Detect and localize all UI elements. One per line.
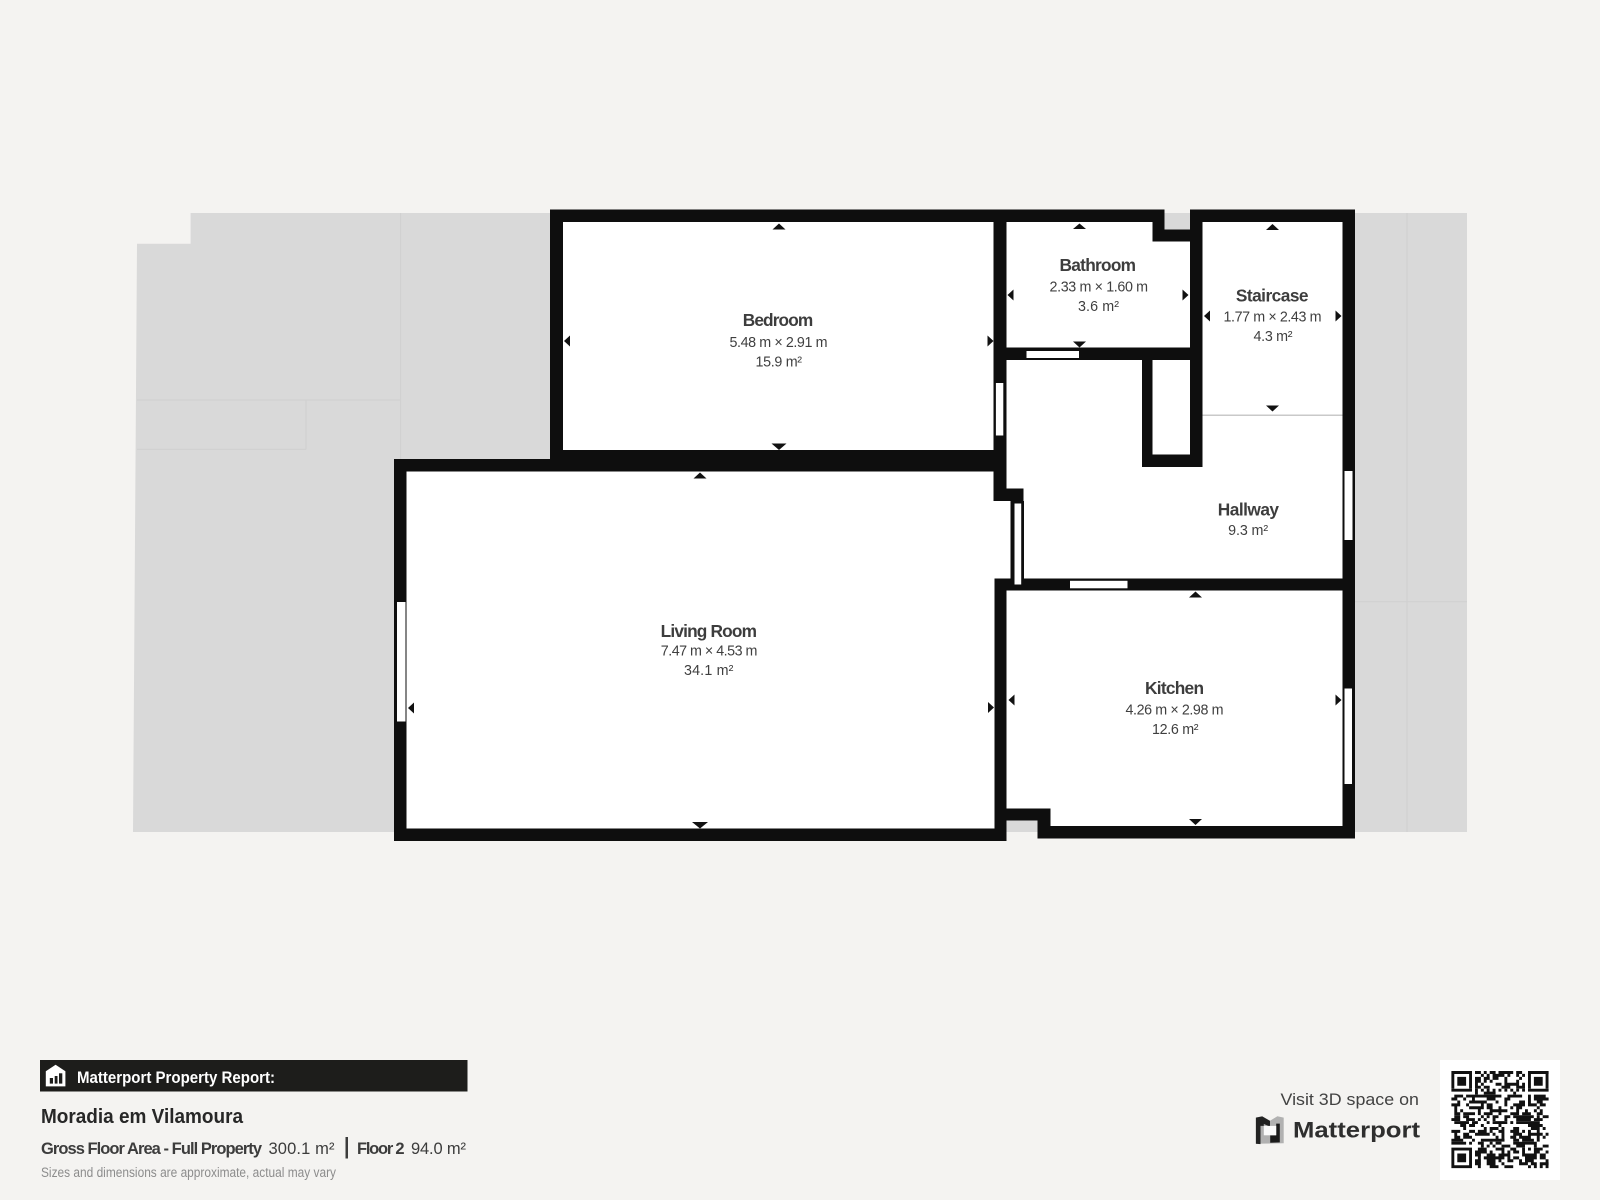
svg-text:9.3 m²: 9.3 m² bbox=[1228, 523, 1268, 539]
svg-text:1.77 m × 2.43 m: 1.77 m × 2.43 m bbox=[1224, 310, 1322, 326]
svg-text:Living Room: Living Room bbox=[661, 621, 757, 641]
svg-text:Matterport: Matterport bbox=[1293, 1118, 1421, 1143]
svg-text:15.9 m²: 15.9 m² bbox=[756, 355, 803, 371]
svg-text:4.26 m × 2.98 m: 4.26 m × 2.98 m bbox=[1126, 703, 1224, 719]
svg-text:Bedroom: Bedroom bbox=[743, 310, 814, 330]
svg-text:Sizes and dimensions are appro: Sizes and dimensions are approximate, ac… bbox=[41, 1165, 336, 1180]
svg-text:300.1 m²: 300.1 m² bbox=[269, 1140, 336, 1158]
svg-text:94.0 m²: 94.0 m² bbox=[411, 1140, 467, 1158]
svg-text:Moradia em Vilamoura: Moradia em Vilamoura bbox=[41, 1106, 244, 1128]
svg-text:Staircase: Staircase bbox=[1236, 286, 1309, 306]
svg-text:4.3 m²: 4.3 m² bbox=[1254, 329, 1293, 345]
svg-text:3.6 m²: 3.6 m² bbox=[1078, 299, 1119, 315]
svg-text:2.33 m × 1.60 m: 2.33 m × 1.60 m bbox=[1050, 280, 1149, 296]
svg-text:Matterport Property Report:: Matterport Property Report: bbox=[77, 1069, 275, 1087]
svg-text:12.6 m²: 12.6 m² bbox=[1152, 722, 1199, 738]
svg-text:7.47 m × 4.53 m: 7.47 m × 4.53 m bbox=[661, 644, 758, 660]
svg-text:Hallway: Hallway bbox=[1218, 500, 1280, 520]
svg-text:Gross Floor Area - Full Proper: Gross Floor Area - Full Property bbox=[41, 1140, 263, 1158]
svg-text:Kitchen: Kitchen bbox=[1145, 678, 1204, 698]
svg-text:Bathroom: Bathroom bbox=[1060, 255, 1137, 275]
svg-text:Floor 2: Floor 2 bbox=[357, 1140, 405, 1158]
svg-text:34.1 m²: 34.1 m² bbox=[684, 663, 734, 679]
svg-text:Visit 3D space on: Visit 3D space on bbox=[1281, 1091, 1419, 1109]
svg-text:5.48 m × 2.91 m: 5.48 m × 2.91 m bbox=[730, 335, 828, 351]
